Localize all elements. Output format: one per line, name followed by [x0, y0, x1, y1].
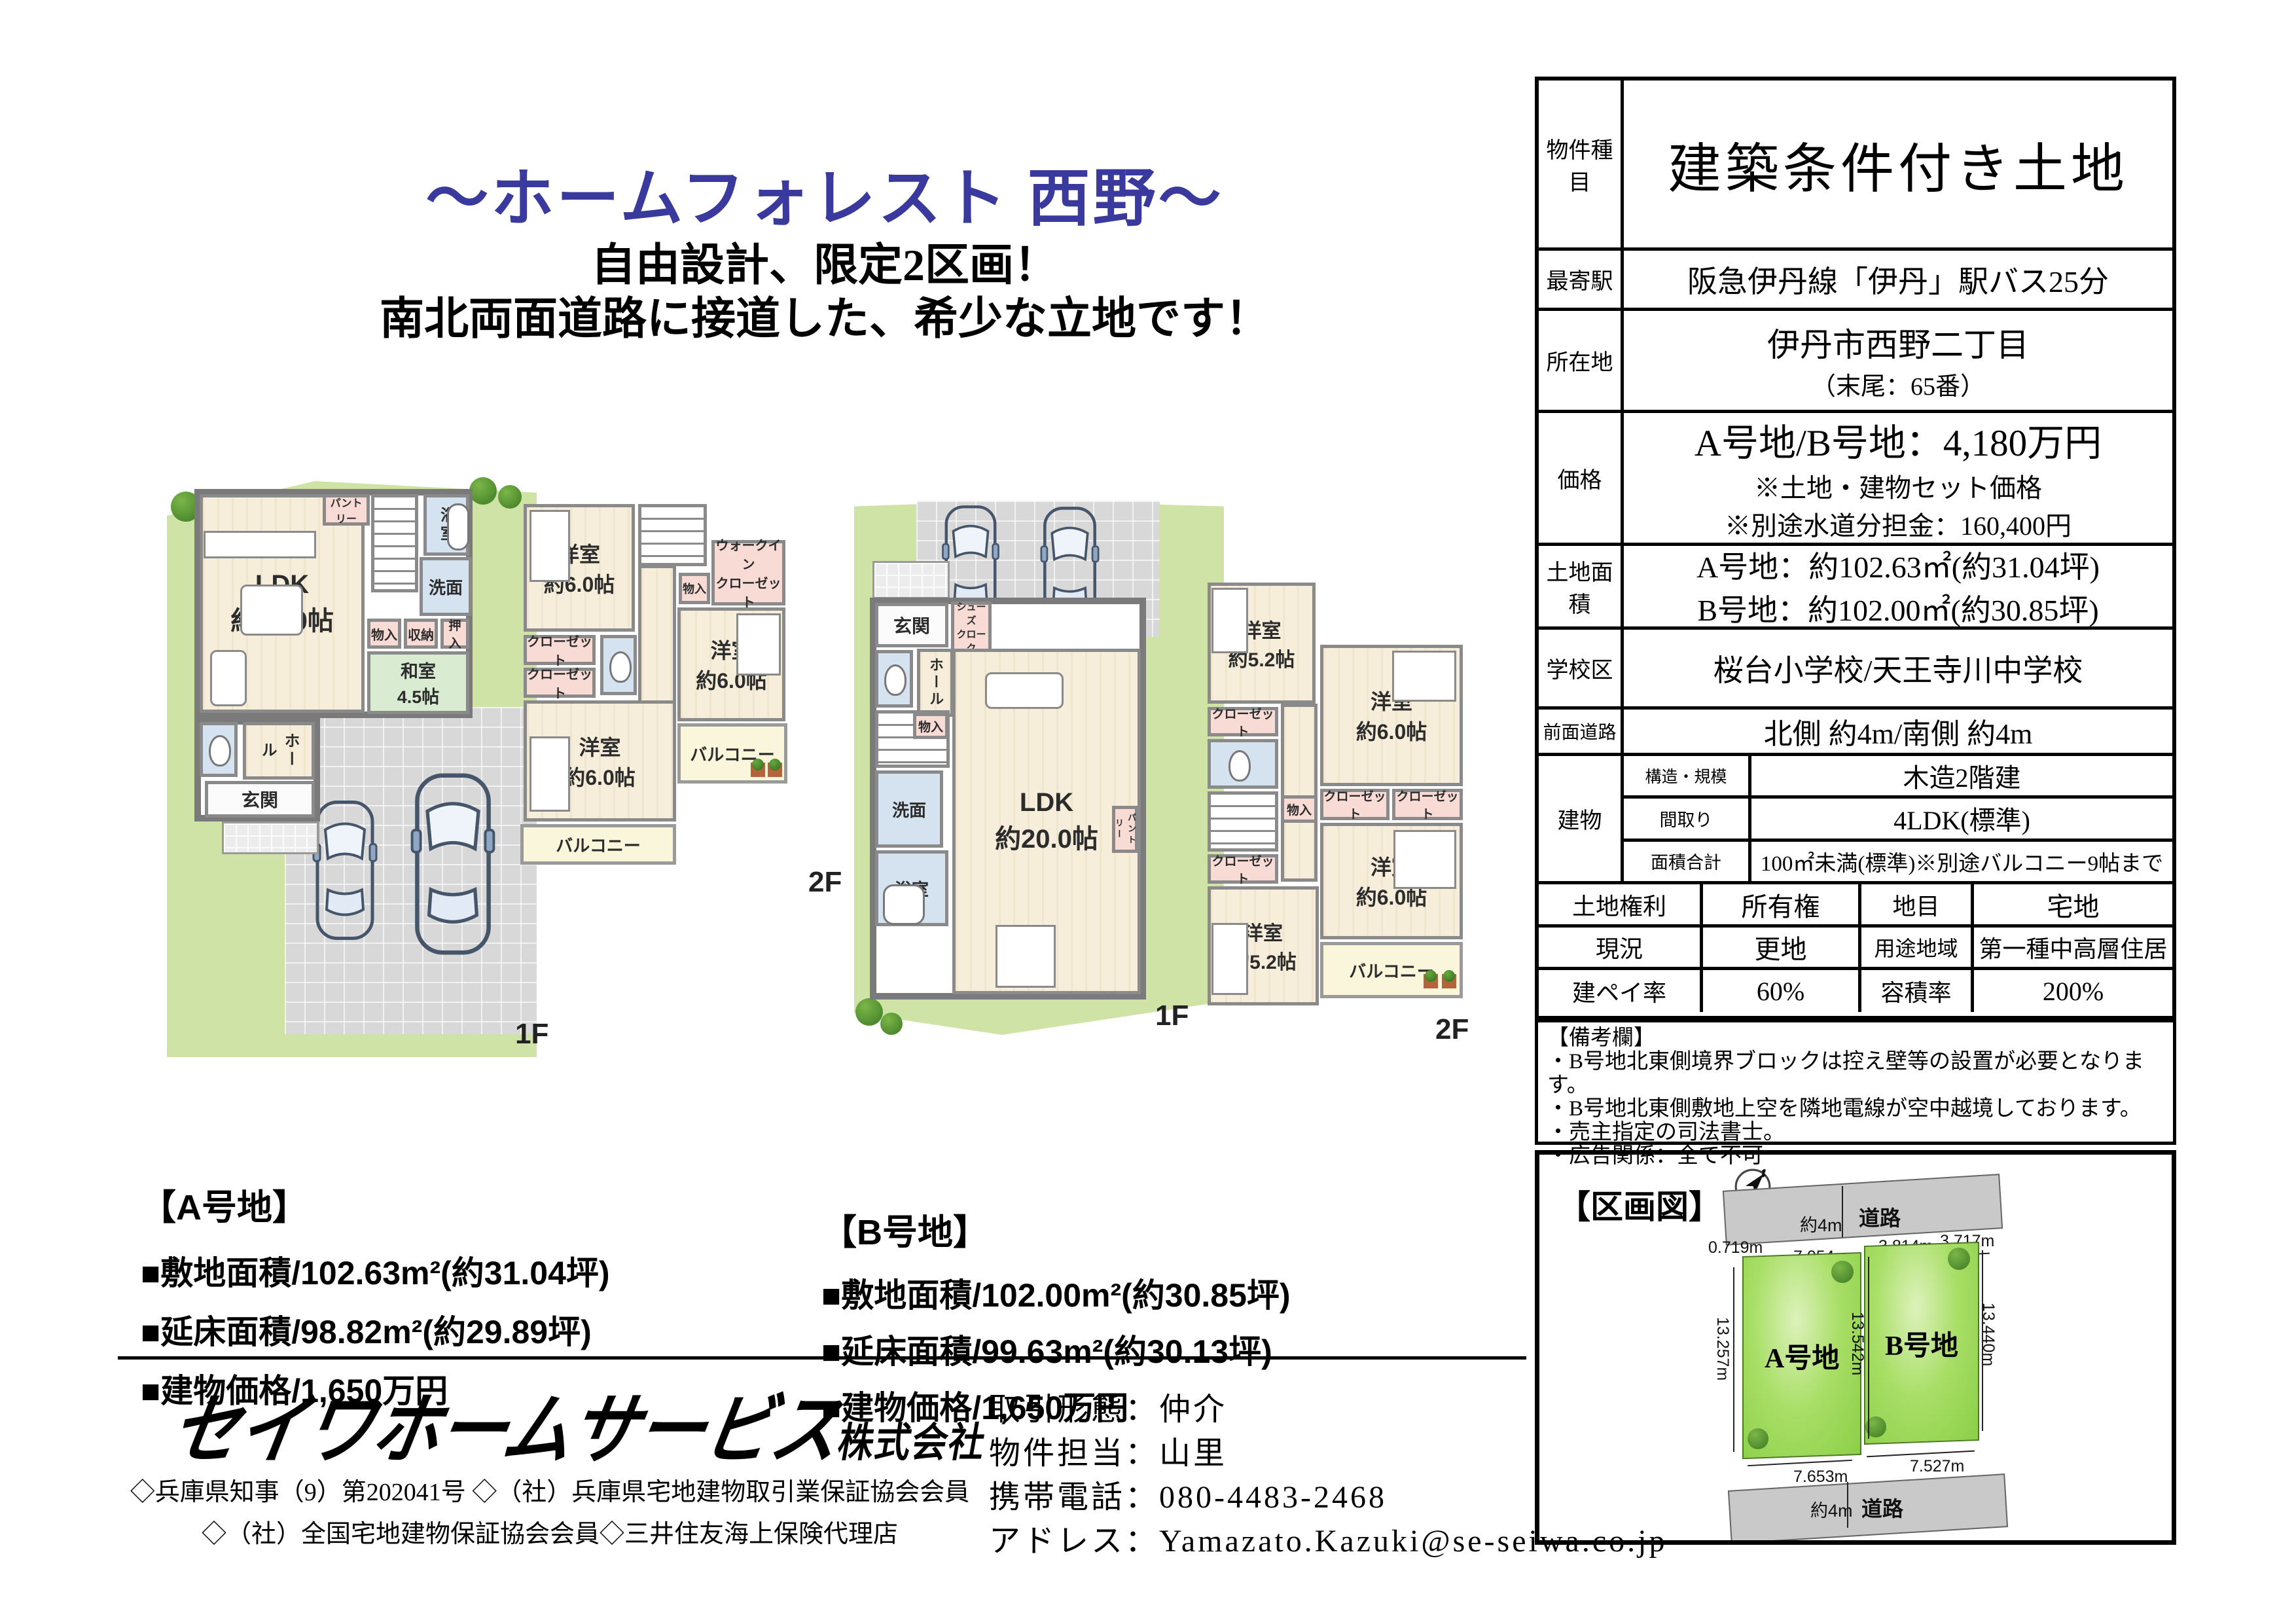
stairs — [1208, 791, 1278, 852]
location-note: （末尾：65番） — [1811, 366, 1985, 402]
bed — [736, 613, 781, 676]
lot-a-label: A号地 — [1765, 1336, 1839, 1376]
location-value: 伊丹市西野二丁目 — [1767, 319, 2029, 366]
price-note-2: ※別途水道分担金：160,400円 — [1725, 505, 2072, 543]
balcony: バルコニー — [520, 824, 676, 865]
room-size: 約20.0帖 — [995, 818, 1098, 856]
flyer-page: 〜ホームフォレスト 西野〜 自由設計、限定2区画！ 南北両面道路に接道した、希少… — [0, 0, 2296, 1624]
row-label: 地目 — [1861, 884, 1974, 924]
room-label: バルコニー — [1349, 958, 1433, 983]
stairs — [638, 504, 707, 566]
bush-icon — [1831, 1261, 1854, 1283]
bed — [1393, 830, 1456, 889]
footer-divider — [118, 1356, 1526, 1360]
room-label: 和室 — [401, 657, 436, 683]
room-label: 収納 — [408, 624, 434, 643]
bush-icon — [1948, 1248, 1970, 1270]
land-area-a: A号地：約102.63㎡(約31.04坪) — [1696, 543, 2100, 586]
row-label: 所在地 — [1539, 311, 1624, 410]
room-closet: クローゼット — [1208, 854, 1278, 884]
room-label: パントリー — [1113, 809, 1138, 850]
corridor — [638, 565, 676, 709]
bush-icon — [855, 998, 883, 1026]
lot-b-area: ■敷地面積/102.00m²(約30.85坪) — [821, 1269, 1291, 1316]
price-note-1: ※土地・建物セット価格 — [1754, 467, 2042, 505]
floorplan-b-1f: 玄関 シューズ クローク ホール 物入 洗面 浴室 LDK 約20.0帖 パント… — [854, 501, 1224, 1057]
floorplan-a-1f: LDK 約18.0帖 パントリー 浴室 洗面 物入 収納 押入 和室 4.5帖 — [167, 481, 537, 1057]
station-value: 阪急伊丹線「伊丹」駅バス25分 — [1687, 258, 2109, 301]
floorplan-b-2f: 洋室 約5.2帖 クローゼット 物入 クローゼット 洋室 約5.2帖 洋室 約6… — [1208, 569, 1466, 1034]
floor-label: 1F — [1155, 1000, 1189, 1032]
corridor — [1281, 704, 1318, 882]
plant-icon — [1424, 974, 1438, 988]
remarks-line: ・B号地北東側敷地上空を隣地電線が空中越境しております。 — [1547, 1097, 2164, 1121]
dim-line — [1733, 1267, 1734, 1452]
room-storage: 押入 — [440, 619, 469, 649]
entrance-porch — [872, 561, 950, 599]
room-genkan: 玄関 — [875, 603, 948, 647]
bed — [1211, 923, 1248, 995]
page-title: 〜ホームフォレスト 西野〜 — [39, 147, 1610, 238]
floorplan-a-2f: 洋室 約6.0帖 物入 ウォークイン クローゼット 洋室 約6.0帖 クローゼッ… — [520, 488, 831, 910]
road-north-label: 道路 — [1859, 1202, 1901, 1232]
dim-b-bottom: 7.527m — [1910, 1457, 1964, 1476]
lot-a-title: 【A号地】 — [141, 1178, 610, 1230]
room-label: ホール — [925, 657, 946, 708]
dim-line — [1867, 1451, 1975, 1458]
room-size: 約6.0帖 — [1356, 715, 1427, 746]
header: 〜ホームフォレスト 西野〜 自由設計、限定2区画！ 南北両面道路に接道した、希少… — [39, 147, 1610, 346]
subrow-label: 面積合計 — [1624, 842, 1751, 881]
row-label: 土地面積 — [1539, 546, 1624, 626]
toilet-icon — [1229, 750, 1251, 782]
room-storage: 収納 — [404, 619, 438, 649]
room-closet: クローゼット — [1392, 789, 1463, 820]
floor-area-ratio-value: 200% — [1974, 970, 2172, 1012]
rights-value: 所有権 — [1703, 884, 1861, 924]
room-label: クローゼット — [1395, 787, 1460, 822]
room-closet: クローゼット — [524, 635, 596, 665]
row-label: 建ペイ率 — [1539, 970, 1703, 1012]
floor-label: 2F — [1435, 1013, 1469, 1046]
dim-line — [1748, 1460, 1852, 1466]
coverage-ratio-value: 60% — [1703, 970, 1861, 1012]
room-label: LDK — [1020, 788, 1073, 818]
stairs — [371, 494, 418, 592]
bed — [529, 736, 570, 812]
dim-line — [1842, 1186, 1843, 1237]
room-closet: クローゼット — [1208, 707, 1278, 736]
room-pantry: パントリー — [323, 494, 370, 526]
bed — [1392, 651, 1456, 702]
car-icon — [410, 753, 495, 975]
room-size: 4.5帖 — [397, 683, 440, 708]
room-shoes-closet: シューズ クローク — [951, 602, 992, 653]
lot-b-label: B号地 — [1885, 1324, 1958, 1363]
room-label: パントリー — [326, 494, 367, 526]
front-road-value: 北側 約4m/南側 約4m — [1764, 710, 2033, 752]
status-value: 更地 — [1703, 928, 1861, 967]
toilet-icon — [209, 735, 231, 767]
balcony: バルコニー — [1320, 942, 1463, 998]
room-label: バルコニー — [556, 833, 640, 857]
row-label: 現況 — [1539, 928, 1703, 967]
room-label: 物入 — [371, 624, 397, 643]
table-row: 物件種目 建築条件付き土地 — [1539, 81, 2172, 251]
table-row: 前面道路 北側 約4m/南側 約4m — [1539, 710, 2172, 756]
remarks-title: 【備考欄】 — [1547, 1026, 2164, 1050]
row-label: 土地権利 — [1539, 884, 1703, 924]
remarks-line: ・売主指定の司法書士。 — [1547, 1121, 2164, 1144]
subtitle-2: 南北両面道路に接道した、希少な立地です！ — [39, 292, 1610, 346]
table-row: 所在地 伊丹市西野二丁目 （末尾：65番） — [1539, 311, 2172, 413]
room-label: 洋室 — [579, 731, 620, 761]
road-north-width: 約4m — [1800, 1211, 1842, 1236]
company-suffix: 株式会社 — [834, 1421, 990, 1466]
company-logo: セイワホームサービス 株式会社 — [164, 1367, 999, 1479]
license-line-2: ◇（社）全国宅地建物保証協会会員◇三井住友海上保険代理店 — [111, 1513, 988, 1549]
toilet-icon — [884, 664, 906, 696]
kitchen-counter — [996, 925, 1056, 988]
company-name: セイワホームサービス — [164, 1388, 846, 1473]
dim-right: 13.440m — [1979, 1303, 1998, 1366]
sofa — [210, 650, 247, 706]
room-label: 洗面 — [429, 575, 463, 599]
room-storage: 物入 — [913, 713, 948, 739]
dim-left: 13.257m — [1713, 1317, 1732, 1380]
dining-table — [240, 585, 303, 636]
table-row: 学校区 桜台小学校/天王寺川中学校 — [1539, 630, 2172, 710]
car-icon — [312, 777, 378, 964]
plot-diagram-title: 【区画図】 — [1558, 1181, 1721, 1228]
table-row: 土地権利 所有権 地目 宅地 — [1539, 884, 2172, 928]
room-washroom: 洗面 — [420, 557, 472, 616]
room-label: 物入 — [683, 580, 706, 597]
bathtub-icon — [883, 884, 925, 925]
bathtub-icon — [447, 503, 469, 550]
subtitle-1: 自由設計、限定2区画！ — [39, 238, 1610, 292]
floor-label: 1F — [515, 1018, 548, 1051]
plant-icon — [768, 763, 782, 777]
room-label: ホール — [256, 725, 302, 776]
spec-table: 物件種目 建築条件付き土地 最寄駅 阪急伊丹線「伊丹」駅バス25分 所在地 伊丹… — [1535, 77, 2176, 1020]
row-label: 前面道路 — [1539, 710, 1624, 753]
dim-mid: 13.542m — [1848, 1312, 1867, 1375]
room-washitsu: 和室 4.5帖 — [367, 651, 469, 714]
row-label: 物件種目 — [1539, 81, 1624, 247]
room-closet: クローゼット — [524, 668, 596, 698]
dim-line — [1868, 1257, 1869, 1439]
price-value: A号地/B号地：4,180万円 — [1695, 413, 2102, 467]
bush-icon — [469, 477, 497, 505]
property-type-value: 建築条件付き土地 — [1668, 125, 2128, 203]
room-storage: 物入 — [367, 619, 401, 649]
lot-b-title: 【B号地】 — [821, 1203, 1291, 1255]
total-area-value: 100㎡未満(標準)※別途バルコニー9帖まで — [1761, 846, 2163, 877]
plot-lot-b: B号地 — [1864, 1242, 1979, 1445]
remarks-line: ・B号地北東側境界ブロックは控え壁等の設置が必要となります。 — [1547, 1050, 2164, 1097]
lot-b-floor-area: ■延床面積/99.63m²(約30.13坪) — [821, 1326, 1291, 1373]
school-value: 桜台小学校/天王寺川中学校 — [1713, 647, 2083, 690]
room-hall: ホール — [917, 649, 954, 717]
room-label: クローゼット — [1323, 787, 1386, 822]
land-category-value: 宅地 — [1974, 884, 2172, 924]
sofa — [985, 672, 1064, 709]
room-walkin-closet: ウォークイン クローゼット — [711, 540, 785, 605]
toilet-icon — [609, 651, 632, 683]
dim-offset: 0.719m — [1708, 1238, 1763, 1257]
lot-a-floor-area: ■延床面積/98.82m²(約29.89坪) — [141, 1306, 610, 1353]
bush-icon — [498, 485, 522, 509]
room-size: 約6.0帖 — [564, 761, 636, 791]
room-label: シューズ — [954, 600, 988, 627]
subrow-label: 間取り — [1624, 799, 1751, 838]
bed — [529, 510, 570, 582]
remarks-box: 【備考欄】 ・B号地北東側境界ブロックは控え壁等の設置が必要となります。 ・B号… — [1535, 1019, 2176, 1145]
building-subrow: 間取り 4LDK(標準) — [1624, 799, 2172, 841]
room-storage: 物入 — [1281, 795, 1318, 823]
license-line-1: ◇兵庫県知事（9）第202041号 ◇（社）兵庫県宅地建物取引業保証協会会員 — [111, 1471, 988, 1507]
table-row-building: 建物 構造・規模 木造2階建 間取り 4LDK(標準) 面積合計 100㎡未満(… — [1539, 756, 2172, 884]
bush-icon — [1748, 1428, 1768, 1449]
room-label: クローゼット — [715, 573, 782, 611]
room-genkan: 玄関 — [205, 781, 315, 818]
subrow-label: 構造・規模 — [1624, 756, 1751, 795]
room-pantry: パントリー — [1112, 806, 1138, 853]
road-south-label: 道路 — [1861, 1492, 1903, 1523]
land-area-b: B号地：約102.00㎡(約30.85坪) — [1697, 586, 2098, 630]
kitchen-counter — [204, 531, 316, 558]
lot-a-area: ■敷地面積/102.63m²(約31.04坪) — [141, 1247, 610, 1294]
entrance-porch — [222, 821, 319, 854]
row-label: 容積率 — [1861, 970, 1974, 1012]
plot-diagram-box: 【区画図】 道路 約4m 0.719m 7.054m 3.814m 3.717m… — [1535, 1150, 2176, 1545]
row-label: 建物 — [1539, 756, 1624, 881]
plant-icon — [751, 763, 765, 777]
room-label: 押入 — [444, 616, 466, 651]
bush-icon — [880, 1013, 903, 1035]
bed — [1211, 588, 1248, 653]
room-label: 玄関 — [242, 786, 278, 812]
room-hall: ホール — [243, 722, 315, 780]
room-label: クローゼット — [527, 664, 592, 702]
room-label: 洋室 — [1244, 917, 1283, 946]
dim-line — [1847, 1482, 1848, 1528]
layout-value: 4LDK(標準) — [1893, 799, 2030, 837]
room-storage: 物入 — [679, 573, 710, 604]
road-south-width: 約4m — [1810, 1496, 1853, 1522]
table-row: 価格 A号地/B号地：4,180万円 ※土地・建物セット価格 ※別途水道分担金：… — [1539, 413, 2172, 546]
table-row: 建ペイ率 60% 容積率 200% — [1539, 970, 2172, 1012]
room-label: 物入 — [1287, 801, 1312, 818]
table-row: 土地面積 A号地：約102.63㎡(約31.04坪) B号地：約102.00㎡(… — [1539, 546, 2172, 630]
zoning-value: 第一種中高層住居 — [1974, 928, 2172, 967]
table-row: 最寄駅 阪急伊丹線「伊丹」駅バス25分 — [1539, 251, 2172, 311]
room-label: 物入 — [918, 717, 943, 735]
plant-icon — [1442, 974, 1456, 988]
room-closet: クローゼット — [1320, 789, 1390, 820]
row-label: 価格 — [1539, 413, 1624, 543]
building-subrow: 面積合計 100㎡未満(標準)※別途バルコニー9帖まで — [1624, 842, 2172, 881]
room-washroom: 洗面 — [875, 770, 943, 848]
room-label: 玄関 — [893, 612, 930, 638]
room-label: クローゼット — [1211, 704, 1275, 740]
row-label: 学校区 — [1539, 630, 1624, 706]
table-row: 現況 更地 用途地域 第一種中高層住居 — [1539, 928, 2172, 970]
row-label: 用途地域 — [1861, 928, 1974, 967]
structure-value: 木造2階建 — [1903, 757, 2021, 795]
floor-label: 2F — [808, 866, 842, 899]
room-label: ウォークイン — [715, 535, 782, 573]
room-label: クローゼット — [1211, 852, 1275, 887]
row-label: 最寄駅 — [1539, 251, 1624, 308]
room-label: 洗面 — [892, 797, 926, 821]
building-subrow: 構造・規模 木造2階建 — [1624, 756, 2172, 799]
